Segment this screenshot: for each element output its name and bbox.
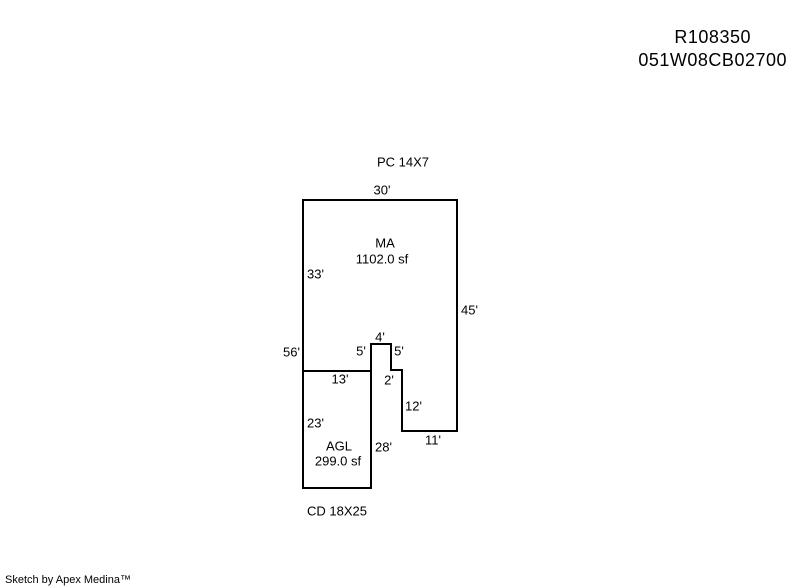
dim-notch-top-label: 4' xyxy=(375,330,385,345)
area-agl-code-label: AGL xyxy=(326,439,352,454)
sketch-page: R108350 051W08CB02700 PC 14X7 30' MA 110… xyxy=(0,0,800,587)
area-ma-sqft-label: 1102.0 sf xyxy=(356,252,409,267)
building-sketch xyxy=(0,0,800,587)
dim-step-label: 2' xyxy=(384,373,394,388)
dim-agl-left-label: 23' xyxy=(307,416,324,431)
dim-notch-left-label: 5' xyxy=(356,344,366,359)
dim-left-total-label: 56' xyxy=(283,345,300,360)
dim-agl-right-label: 28' xyxy=(375,440,392,455)
area-ma-code-label: MA xyxy=(375,236,395,251)
dim-top-label: 30' xyxy=(374,183,391,198)
dim-bottom-right-label: 11' xyxy=(425,433,441,448)
dim-right-label: 45' xyxy=(461,303,478,318)
area-agl-sqft-label: 299.0 sf xyxy=(315,454,361,469)
dim-left-upper-label: 33' xyxy=(307,267,324,282)
attachment-cd-label: CD 18X25 xyxy=(307,504,367,519)
attachment-pc-label: PC 14X7 xyxy=(377,155,429,170)
sketch-attribution: Sketch by Apex Medina™ xyxy=(5,574,131,586)
dim-step-right-label: 12' xyxy=(405,399,422,414)
dim-notch-right-label: 5' xyxy=(394,344,404,359)
dim-divider-label: 13' xyxy=(332,372,349,387)
